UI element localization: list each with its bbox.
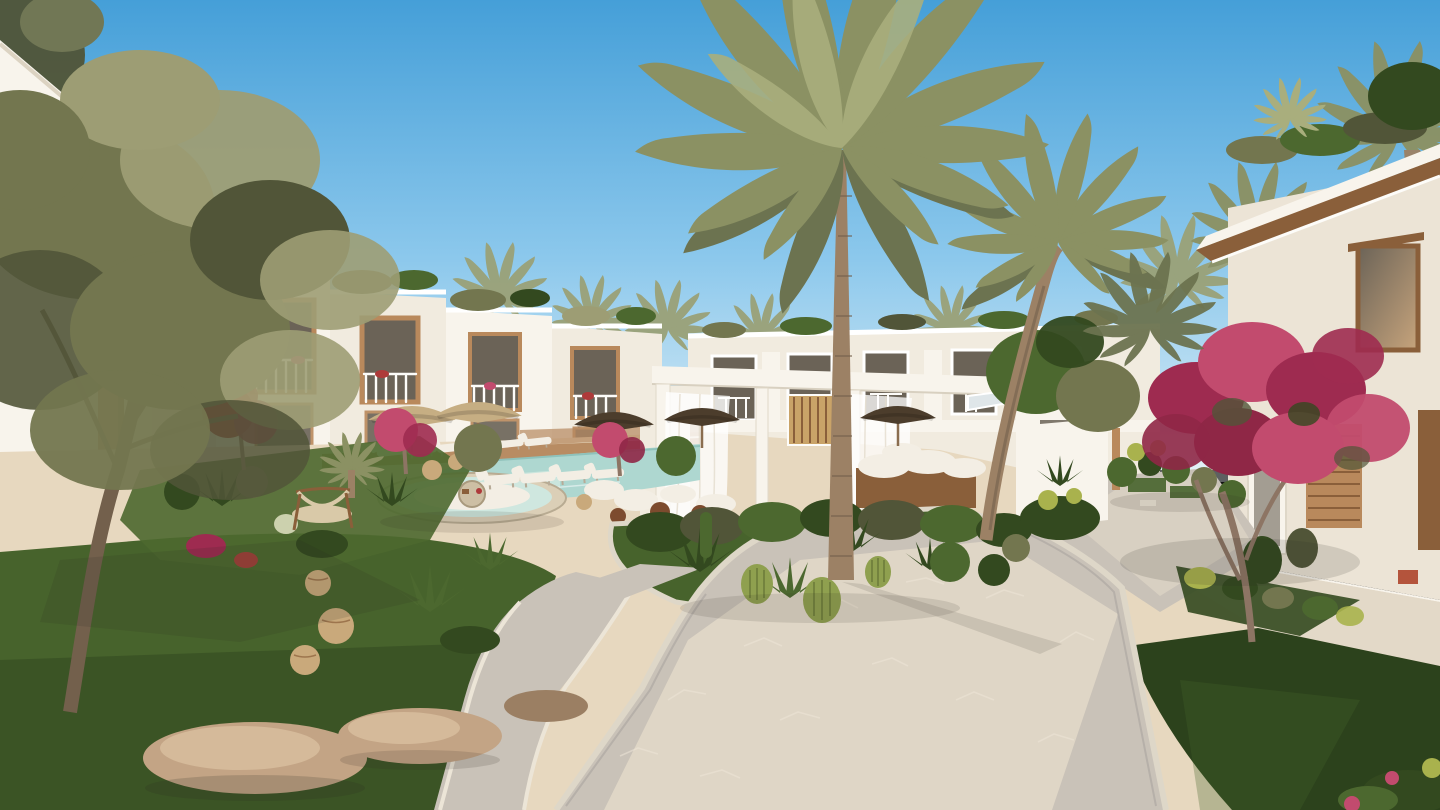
shadow [145,775,365,801]
green-tree [656,436,696,476]
green-tree [454,424,502,472]
trimmed-bush [930,542,970,582]
shadow [380,511,564,533]
cushion [660,485,696,503]
leafy-tree [1056,360,1140,432]
shrub [738,502,806,542]
bougainvillea-bloom [1312,328,1384,384]
column-cactus [700,512,712,558]
boulder-highlight [348,712,460,744]
yellow-bush [1336,606,1364,626]
olive-canopy [30,370,210,490]
hammock-seat [292,505,352,523]
resort-courtyard-rendering [0,0,1440,810]
bougainvillea-shadow [1120,538,1360,586]
roof-plants [562,306,610,326]
roof-plants [450,289,506,311]
resort-render-stage [0,0,1440,810]
roof-plants [702,322,746,338]
boulder [504,690,588,722]
daybed-pillow [882,443,922,461]
bougainvillea-leaves [1288,402,1320,426]
boulder-highlight [160,726,320,770]
trimmed-bush [978,554,1010,586]
yellow-flowers [1066,488,1082,504]
wicker-pot [422,460,442,480]
island-shadow [680,593,960,623]
pink-tree [403,423,437,457]
bush-shadow [1110,492,1250,512]
roof-plants [780,317,832,335]
trimmed-bush [1002,534,1030,562]
straw-pouf [576,494,592,510]
bougainvillea-leaves [1334,446,1370,470]
daybed-cushion [942,458,986,478]
roof-plants [510,289,550,307]
red-flowers [582,392,594,400]
red-flowers [375,370,389,378]
olive-canopy [260,230,400,330]
rattan-lantern [290,645,320,675]
table-bowl [476,488,482,494]
balcony-opening [362,318,418,402]
leafy-tree [1036,316,1104,368]
trimmed-bush [1191,467,1217,493]
shadow [340,750,500,770]
roof-plants [978,311,1030,329]
bougainvillea-bloom [1142,414,1210,470]
red-flowers [484,382,496,390]
roof-plants [616,307,656,325]
shrub [1262,587,1294,609]
table-tray [462,489,469,494]
small-palm-trunk [348,470,355,498]
pink-tree [619,437,645,463]
roof-plants [878,314,926,330]
bougainvillea-leaves [1212,398,1252,426]
pink-flowers [1385,771,1399,785]
fern-clump [440,626,500,654]
trimmed-bush [1107,457,1137,487]
yellow-flowers [1038,490,1058,510]
wood-shutter-edge [1418,410,1440,550]
shrub [920,505,984,543]
terracotta-vent [1398,570,1418,584]
shrub [1302,596,1338,620]
dark-hedge [1020,496,1100,540]
